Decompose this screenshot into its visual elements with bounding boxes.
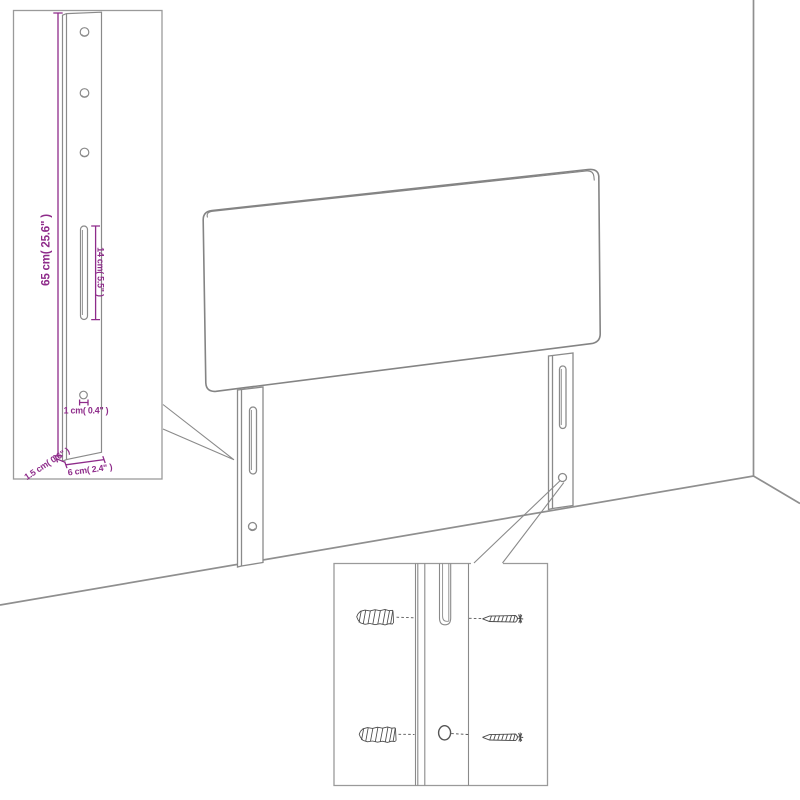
diagram-canvas: 65 cm( 25.6" ) 14 cm( 5.5" ) 1 cm( 0.4" … <box>0 0 800 800</box>
dimension-hole-diameter-label: 1 cm( 0.4" ) <box>64 407 109 416</box>
left-leg <box>238 387 264 567</box>
headboard-panel <box>203 169 600 391</box>
leg-closeup-hole <box>439 726 451 740</box>
diagram-artwork <box>0 0 800 800</box>
dimension-post-height-label: 65 cm( 25.6" ) <box>41 214 53 286</box>
dimension-slot-length-label: 14 cm( 5.5" ) <box>96 247 105 297</box>
mounting-detail-inset <box>334 564 548 786</box>
post-inset-pointer-lines <box>163 405 234 460</box>
mounting-inset-frame <box>334 564 548 786</box>
